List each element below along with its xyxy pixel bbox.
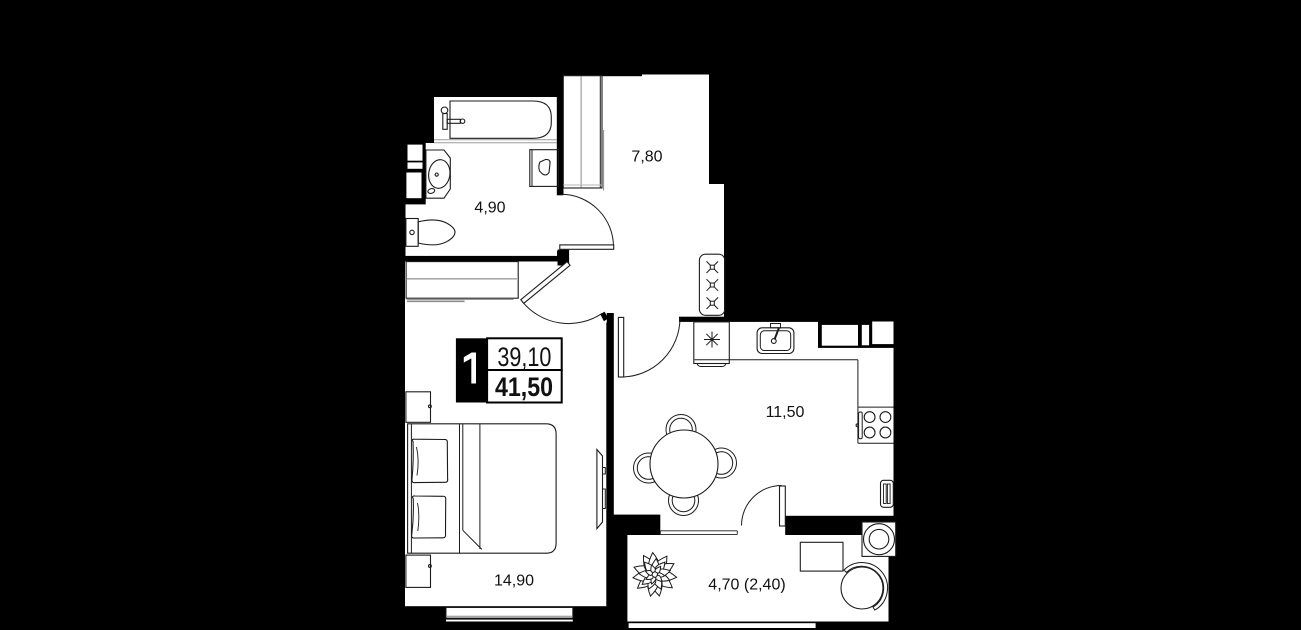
svg-text:41,50: 41,50 bbox=[495, 372, 553, 402]
svg-text:4,90: 4,90 bbox=[474, 200, 505, 217]
svg-text:39,10: 39,10 bbox=[497, 342, 551, 372]
svg-text:7,80: 7,80 bbox=[631, 149, 662, 166]
svg-text:14,90: 14,90 bbox=[494, 573, 534, 590]
svg-text:11,50: 11,50 bbox=[766, 404, 805, 421]
svg-text:4,70 (2,40): 4,70 (2,40) bbox=[708, 577, 785, 594]
